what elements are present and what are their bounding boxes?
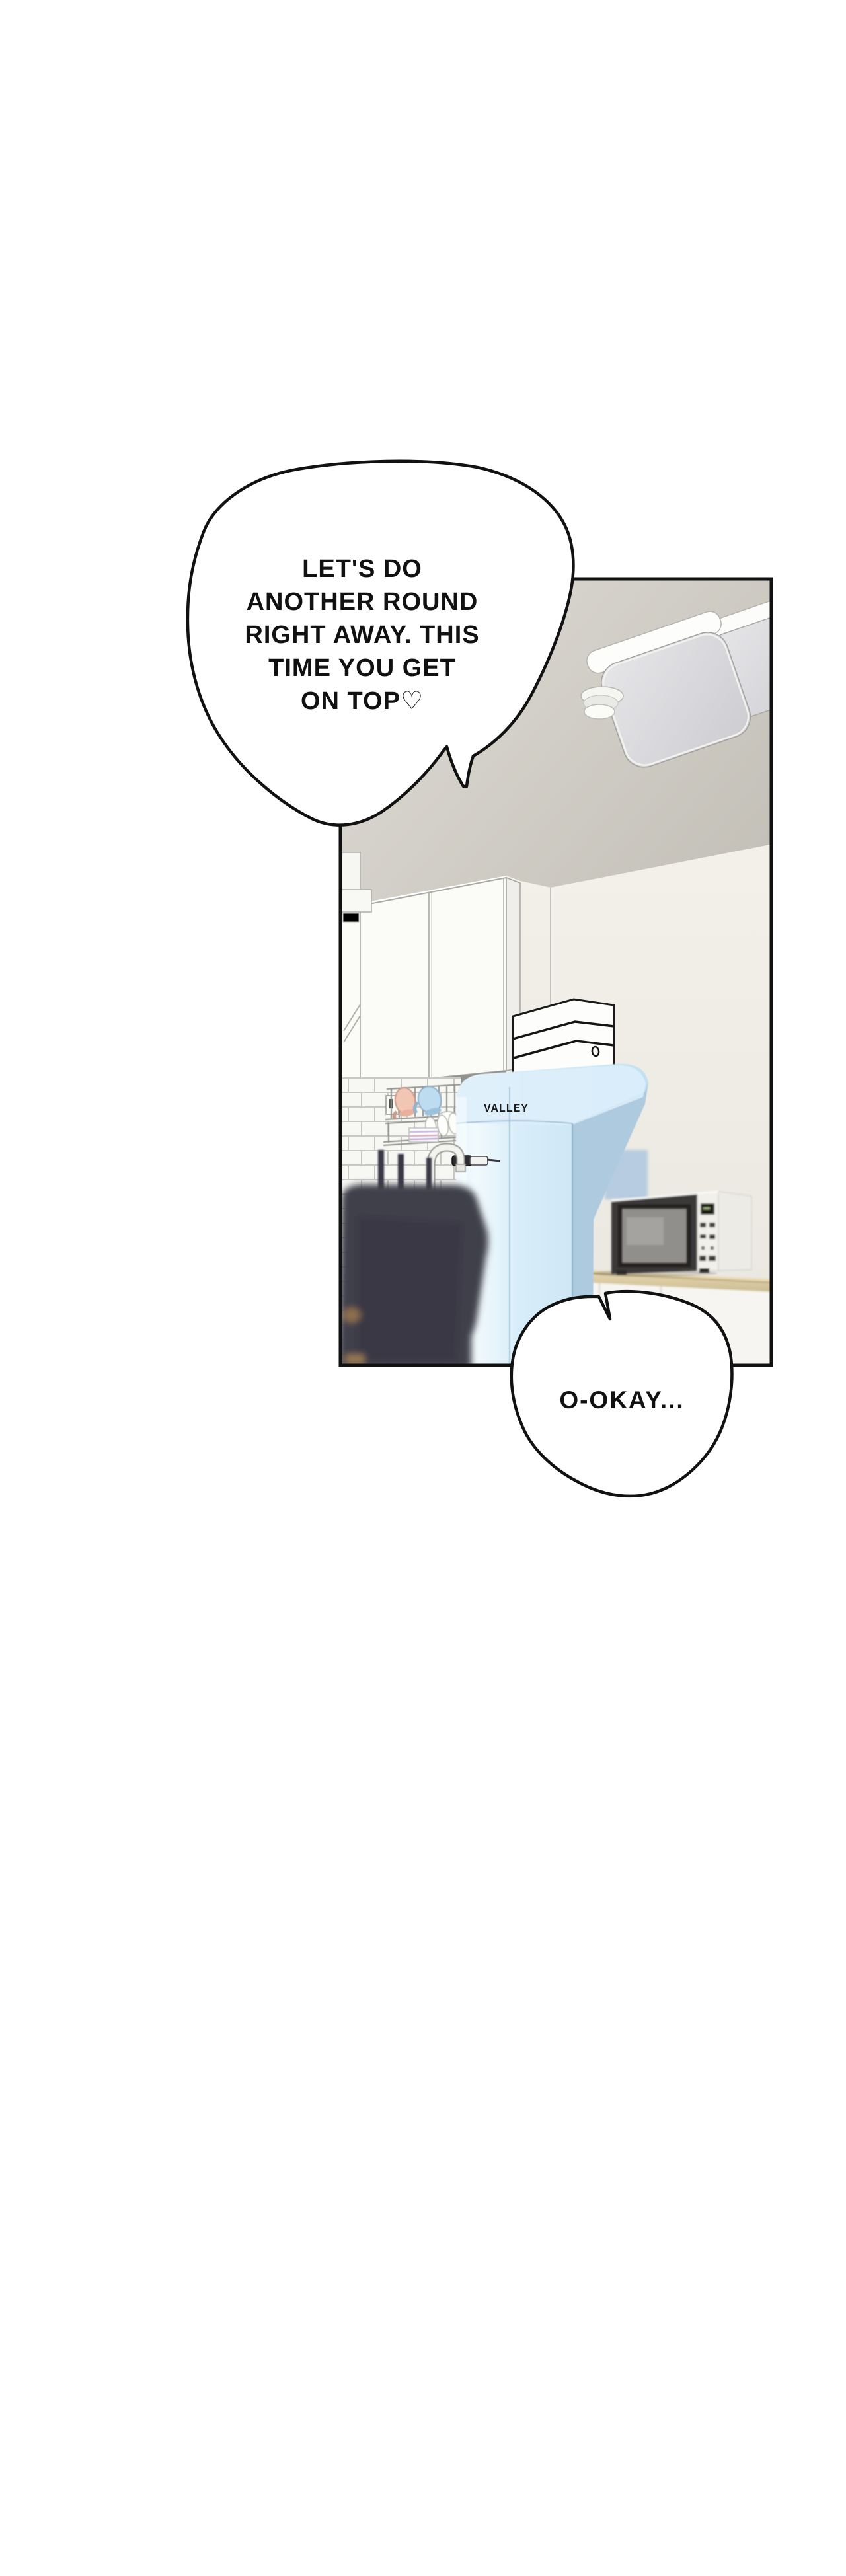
bubble-top-line: TIME YOU GET: [245, 652, 479, 685]
bubble-top-line: LET'S DO: [245, 552, 479, 586]
comic-page-svg: [0, 0, 846, 1586]
bubble-top-text: LET'S DO ANOTHER ROUND RIGHT AWAY. THIS …: [245, 552, 479, 718]
fridge-brand-label: VALLEY: [484, 1103, 529, 1116]
microwave-side: [718, 1192, 751, 1271]
foreground-dark-object: [338, 1184, 488, 1369]
comic-page: LET'S DO ANOTHER ROUND RIGHT AWAY. THIS …: [0, 0, 846, 2576]
microwave: [611, 1192, 751, 1275]
bubble-top-line: ON TOP♡: [245, 685, 479, 718]
bubble-bottom-text: O-OKAY...: [559, 1386, 684, 1414]
bubble-top-line: RIGHT AWAY. THIS: [245, 619, 479, 652]
striped-plate-stack: [409, 1128, 438, 1142]
bubble-top-line: ANOTHER ROUND: [245, 586, 479, 619]
